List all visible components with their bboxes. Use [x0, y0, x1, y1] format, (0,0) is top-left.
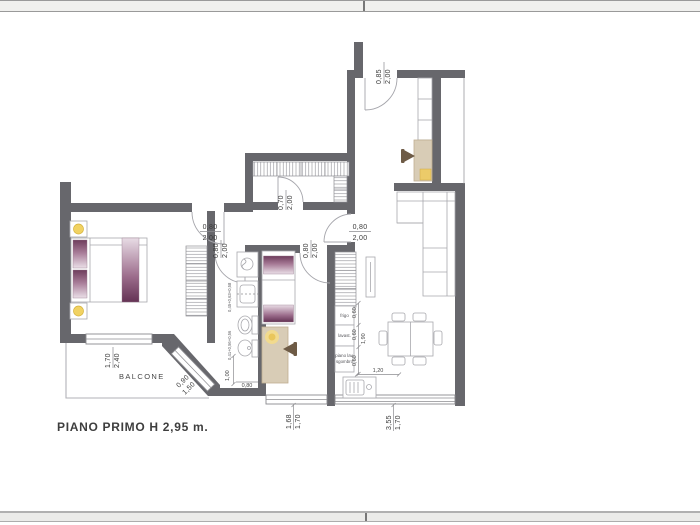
living-furniture: frigo lavast. piano lav. sgombro [335, 192, 455, 398]
kitchen-module-dim: 0,60 [352, 355, 358, 366]
bathroom-door-height: 2,00 [222, 243, 229, 258]
lamp-icon [74, 224, 84, 234]
wall-shelves [335, 252, 356, 307]
kitchen-module-dim: 0,60 [352, 307, 358, 318]
bathroom-fixtures [237, 252, 258, 357]
entrance-door-height: 2,00 [385, 69, 392, 84]
closet-door-height: 2,00 [287, 195, 294, 210]
bedroom2-window-width: 1,68 [286, 414, 293, 429]
dining-chair [413, 357, 426, 365]
floor-plan-drawing: frigo lavast. piano lav. sgombro [0, 0, 700, 525]
bedroom2-window [266, 395, 327, 404]
bedroom1-window [86, 334, 152, 344]
bedroom1-door-width: 0,80 [203, 224, 218, 231]
hall-furniture [401, 78, 432, 181]
lamp-icon [74, 306, 84, 316]
dining-table [379, 313, 442, 365]
balcony-label: BALCONE [119, 372, 165, 381]
dishwasher-label: lavast. [338, 333, 351, 338]
closet-door-width: 0,70 [278, 195, 285, 210]
bed-runner [122, 238, 139, 302]
bidet [238, 340, 258, 357]
wardrobe [186, 246, 207, 316]
washbasin [237, 281, 258, 307]
dining-chair [392, 313, 405, 321]
blanket [264, 305, 294, 322]
dining-chair [413, 313, 426, 321]
bath-fixtures-dim-top: 0,45+0,63+0,58 [227, 282, 232, 312]
dining-chair [379, 331, 387, 345]
plan-title: PIANO PRIMO H 2,95 m. [57, 420, 208, 434]
bath-door-width-dim: 0,80 [242, 383, 253, 389]
bedroom2-furniture [262, 251, 297, 383]
bedroom2-door-width: 0,80 [303, 243, 310, 258]
worktop-label-2: sgombro [336, 359, 354, 364]
entrance-door-width: 0,85 [376, 69, 383, 84]
bathroom-door-width: 0,80 [213, 243, 220, 258]
desk-chair [401, 149, 415, 163]
bath-fixtures-dim-bottom: 0,41+0,56+0,56 [227, 330, 232, 360]
kitchen-sink [343, 377, 376, 398]
worktop-label-1: piano lav. [335, 353, 353, 358]
kitchen-units: frigo lavast. piano lav. sgombro [335, 306, 376, 398]
living-door-width: 0,80 [353, 224, 368, 231]
living-door [324, 214, 351, 242]
bedroom1-window-height: 2,40 [114, 353, 121, 368]
fridge-label: frigo [340, 313, 349, 318]
hall-cabinet [418, 78, 432, 140]
living-window-height: 1,70 [395, 415, 402, 430]
floor-plan-page: frigo lavast. piano lav. sgombro [0, 0, 700, 525]
living-window-width: 3,55 [386, 415, 393, 430]
dining-chair [392, 357, 405, 365]
pillow [73, 270, 87, 298]
bedroom1-window-width: 1,70 [105, 353, 112, 368]
shower [237, 252, 258, 277]
tv-unit [366, 257, 375, 297]
pillow [73, 240, 87, 268]
dining-chair [434, 331, 442, 345]
pillow [264, 256, 294, 274]
desk-lamp [269, 334, 276, 341]
kitchen-module-dim: 0,60 [352, 329, 358, 340]
desk-pad [420, 169, 431, 180]
living-door-height: 2,00 [353, 235, 368, 242]
corner-sofa [397, 192, 455, 296]
bedroom1-door-height: 2,00 [203, 235, 218, 242]
bedroom2-door-height: 2,00 [312, 243, 319, 258]
kitchen-run-dim: 1,20 [373, 368, 384, 374]
bath-clearance-dim: 1,00 [225, 370, 231, 381]
closet-units [253, 162, 349, 202]
toilet [238, 316, 258, 334]
bedroom2-window-height: 1,70 [295, 414, 302, 429]
bedroom1-furniture [70, 221, 207, 319]
kitchen-total-dim: 1,90 [361, 333, 367, 344]
